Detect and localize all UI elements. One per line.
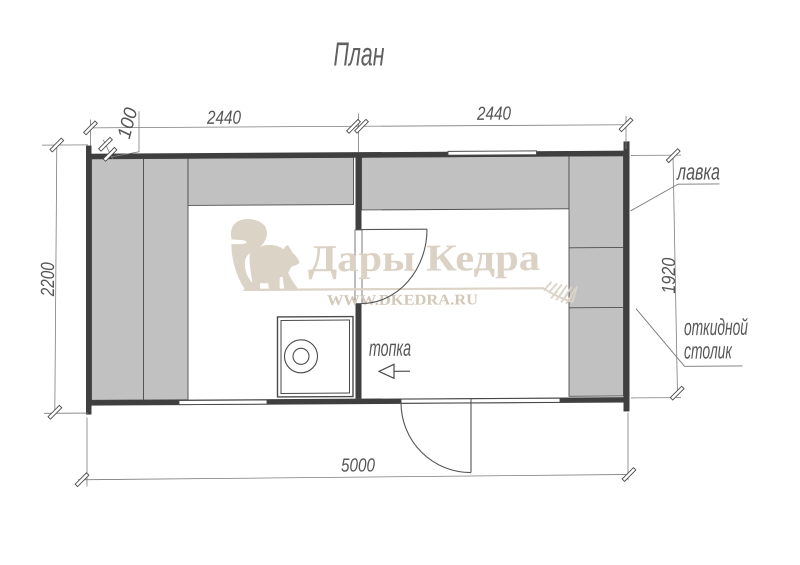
svg-text:План: План (334, 36, 385, 73)
svg-text:Дары Кедра: Дары Кедра (308, 237, 540, 280)
svg-text:столик: столик (684, 337, 733, 363)
svg-text:5000: 5000 (341, 455, 375, 476)
svg-text:2440: 2440 (476, 104, 511, 125)
svg-text:топка: топка (369, 335, 411, 361)
svg-text:лавка: лавка (676, 158, 720, 184)
svg-text:2200: 2200 (38, 262, 59, 297)
svg-text:откидной: откидной (684, 314, 748, 340)
svg-text:2440: 2440 (206, 108, 241, 129)
svg-text:WWW.DKEDRA.RU: WWW.DKEDRA.RU (327, 292, 478, 309)
svg-text:1920: 1920 (659, 257, 680, 293)
